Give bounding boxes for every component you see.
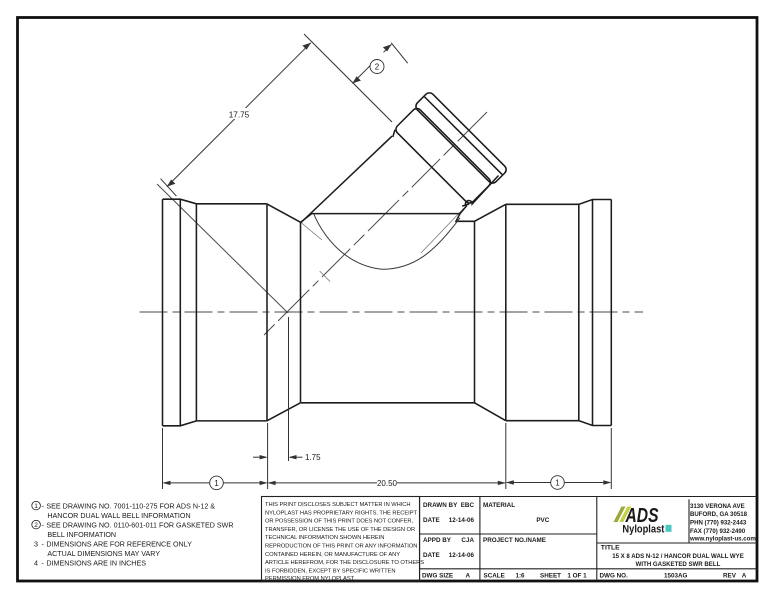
svg-text:1:6: 1:6 [515,573,525,580]
svg-text:DRAWN BY: DRAWN BY [423,502,458,509]
svg-text:ARTICLE HEREFROM, FOR THE DISC: ARTICLE HEREFROM, FOR THE DISCLOSURE TO … [265,560,424,566]
svg-text:Nyloplast: Nyloplast [622,523,664,535]
svg-text:3130 VERONA AVE: 3130 VERONA AVE [690,503,745,510]
svg-text:BUFORD, GA 30518: BUFORD, GA 30518 [690,511,748,518]
svg-text:FAX (770) 932-2490: FAX (770) 932-2490 [690,528,746,535]
svg-text:DWG NO.: DWG NO. [600,573,629,580]
svg-text:TRANSFER, OR LICENSE THE USE O: TRANSFER, OR LICENSE THE USE OF THE DESI… [265,527,415,533]
svg-text:1: 1 [555,478,559,487]
svg-text:-: - [42,560,45,568]
svg-text:1: 1 [34,503,38,510]
svg-text:CJA: CJA [461,537,474,544]
svg-text:SCALE: SCALE [484,573,505,580]
svg-text:APPD BY: APPD BY [423,537,452,544]
svg-text:DIMENSIONS ARE FOR REFERENCE O: DIMENSIONS ARE FOR REFERENCE ONLY [46,541,192,549]
svg-text:MATERIAL: MATERIAL [483,502,515,509]
svg-text:NYLOPLAST HAS PROPRIETARY RIGH: NYLOPLAST HAS PROPRIETARY RIGHTS. THE RE… [265,510,418,516]
svg-text:EBC: EBC [461,502,475,509]
svg-text:WITH GASKETED SWR BELL: WITH GASKETED SWR BELL [636,561,721,568]
svg-text:DIMENSIONS ARE IN INCHES: DIMENSIONS ARE IN INCHES [46,560,146,568]
svg-text:2: 2 [375,63,380,72]
svg-text:DWG SIZE: DWG SIZE [422,573,453,580]
svg-text:PVC: PVC [536,517,549,524]
svg-text:-: - [42,503,45,511]
svg-text:2: 2 [34,522,38,529]
svg-text:DATE: DATE [423,552,440,559]
svg-text:A: A [742,573,747,580]
svg-text:REV: REV [723,573,737,580]
svg-text:IS FORBIDDEN, EXCEPT BY SPECIF: IS FORBIDDEN, EXCEPT BY SPECIFIC WRITTEN [265,568,395,574]
svg-text:PERMISSION FROM NYLOPLAST.: PERMISSION FROM NYLOPLAST. [265,576,355,582]
svg-text:PHN (770) 932-2443: PHN (770) 932-2443 [690,520,747,527]
svg-text:-: - [42,541,45,549]
svg-text:CONTAINED HEREIN, OR MANUFACTU: CONTAINED HEREIN, OR MANUFACTURE OF ANY [265,552,400,558]
svg-text:ACTUAL DIMENSIONS MAY VARY: ACTUAL DIMENSIONS MAY VARY [47,550,160,558]
svg-text:DATE: DATE [423,517,440,524]
svg-text:SEE DRAWING NO. 0110-601-011 F: SEE DRAWING NO. 0110-601-011 FOR GASKETE… [46,522,233,530]
svg-text:A: A [465,573,470,580]
svg-text:TECHNICAL INFORMATION SHOWN HE: TECHNICAL INFORMATION SHOWN HEREIN [265,535,384,541]
svg-text:BELL INFORMATION: BELL INFORMATION [47,531,116,539]
svg-text:REPRODUCTION OF THIS PRINT OR: REPRODUCTION OF THIS PRINT OR ANY INFORM… [265,544,417,550]
svg-text:OR POSSESSION OF THIS PRINT DO: OR POSSESSION OF THIS PRINT DOES NOT CON… [265,519,414,525]
svg-text:SEE DRAWING NO. 7001-110-275 F: SEE DRAWING NO. 7001-110-275 FOR ADS N-1… [46,503,215,511]
svg-text:TITLE: TITLE [601,545,620,552]
svg-text:12-14-06: 12-14-06 [449,517,475,524]
svg-text:15 X 8 ADS N-12 / HANCOR DUAL: 15 X 8 ADS N-12 / HANCOR DUAL WALL WYE [612,553,744,560]
svg-text:THIS PRINT DISCLOSES SUBJECT M: THIS PRINT DISCLOSES SUBJECT MATTER IN W… [265,502,411,508]
svg-text:12-14-06: 12-14-06 [449,552,475,559]
svg-text:www.nyloplast-us.com: www.nyloplast-us.com [689,536,756,543]
svg-text:3: 3 [34,541,38,549]
svg-text:4: 4 [34,560,38,568]
svg-text:1503AG: 1503AG [664,573,688,580]
svg-text:17.75: 17.75 [229,111,250,120]
svg-text:20.50: 20.50 [377,479,398,488]
svg-text:SHEET: SHEET [540,573,561,580]
svg-text:PROJECT NO./NAME: PROJECT NO./NAME [483,537,546,544]
svg-text:1.75: 1.75 [305,453,321,462]
svg-text:1: 1 [214,479,218,488]
svg-text:1 OF 1: 1 OF 1 [567,573,587,580]
svg-text:-: - [42,522,45,530]
svg-text:HANCOR DUAL WALL BELL INFORMAT: HANCOR DUAL WALL BELL INFORMATION [47,512,190,520]
